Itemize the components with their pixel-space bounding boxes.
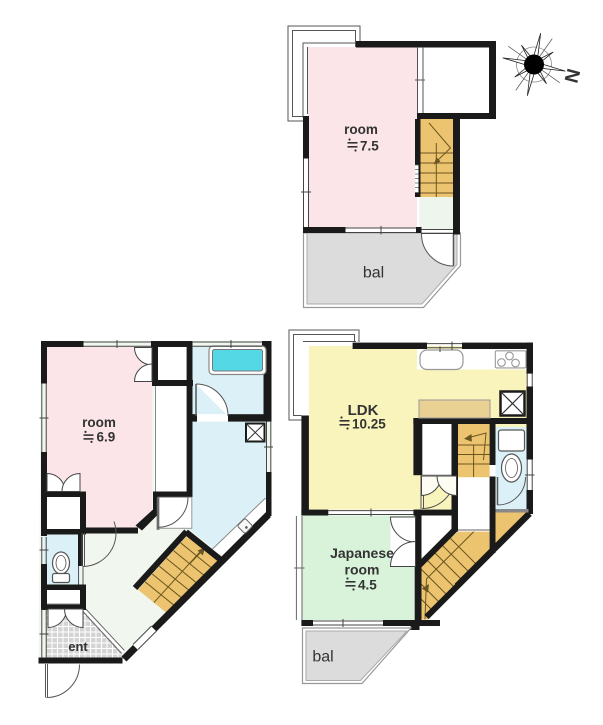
- svg-text:10.25: 10.25: [352, 417, 386, 432]
- svg-text:room: room: [82, 415, 116, 430]
- svg-text:6.9: 6.9: [97, 430, 116, 445]
- svg-text:ent: ent: [68, 639, 88, 654]
- svg-text:4.5: 4.5: [358, 578, 377, 593]
- svg-text:room: room: [344, 122, 378, 137]
- svg-text:bal: bal: [312, 649, 333, 666]
- svg-text:room: room: [345, 562, 380, 578]
- svg-text:Japanese: Japanese: [330, 545, 394, 561]
- svg-text:7.5: 7.5: [360, 139, 379, 154]
- svg-text:bal: bal: [363, 265, 384, 282]
